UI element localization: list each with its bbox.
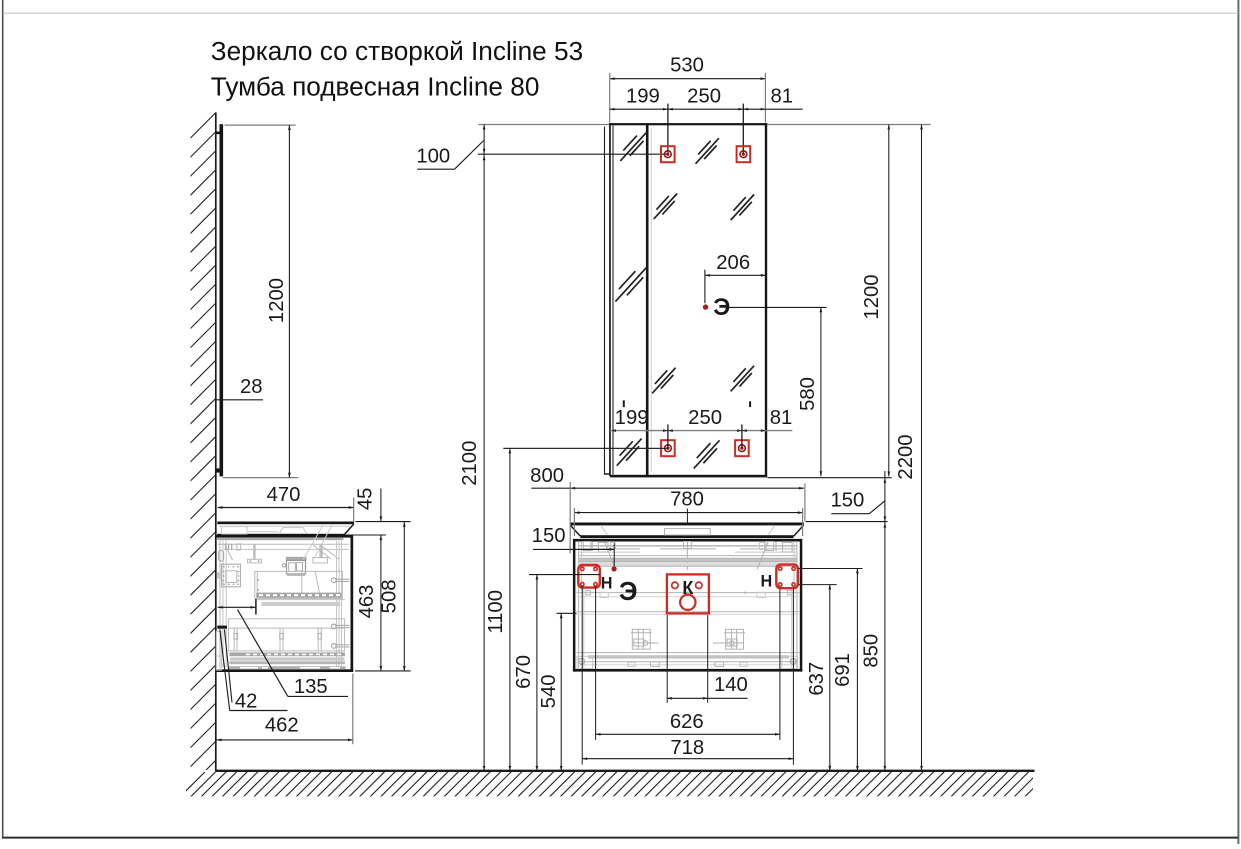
svg-text:670: 670 (513, 655, 535, 689)
svg-text:850: 850 (861, 634, 883, 668)
svg-text:463: 463 (356, 585, 378, 619)
svg-text:1200: 1200 (266, 278, 288, 323)
svg-text:470: 470 (267, 484, 301, 506)
svg-text:199: 199 (626, 86, 660, 108)
svg-text:540: 540 (538, 674, 560, 708)
svg-text:100: 100 (416, 145, 450, 167)
svg-text:691: 691 (832, 653, 854, 687)
svg-text:626: 626 (670, 711, 704, 733)
svg-text:81: 81 (770, 407, 793, 429)
svg-text:2200: 2200 (895, 434, 917, 479)
svg-text:780: 780 (670, 489, 704, 511)
svg-text:530: 530 (670, 54, 704, 76)
svg-text:580: 580 (797, 377, 819, 411)
svg-text:250: 250 (688, 407, 722, 429)
svg-text:Н: Н (761, 572, 773, 590)
svg-text:462: 462 (265, 715, 299, 737)
svg-text:28: 28 (240, 376, 263, 398)
svg-text:1200: 1200 (861, 274, 883, 319)
svg-text:637: 637 (806, 662, 828, 696)
svg-text:150: 150 (830, 490, 864, 512)
svg-text:150: 150 (532, 525, 566, 547)
svg-text:42: 42 (235, 691, 258, 713)
svg-text:800: 800 (530, 465, 564, 487)
svg-text:1100: 1100 (485, 590, 507, 634)
svg-text:Э: Э (619, 576, 638, 606)
svg-text:2100: 2100 (459, 441, 481, 486)
svg-text:140: 140 (714, 674, 748, 696)
svg-text:Тумба подвесная Incline 80: Тумба подвесная Incline 80 (211, 72, 540, 102)
svg-text:250: 250 (687, 86, 721, 108)
svg-text:Н: Н (601, 574, 613, 592)
svg-text:К: К (682, 578, 694, 598)
svg-text:135: 135 (294, 676, 328, 698)
svg-text:81: 81 (771, 86, 794, 108)
svg-text:Э: Э (713, 294, 730, 321)
svg-text:508: 508 (379, 579, 401, 613)
svg-text:206: 206 (716, 252, 750, 274)
svg-text:718: 718 (670, 737, 704, 759)
svg-text:Зеркало со створкой Incline 53: Зеркало со створкой Incline 53 (211, 36, 583, 66)
svg-text:199: 199 (615, 407, 649, 429)
svg-text:45: 45 (354, 488, 376, 511)
